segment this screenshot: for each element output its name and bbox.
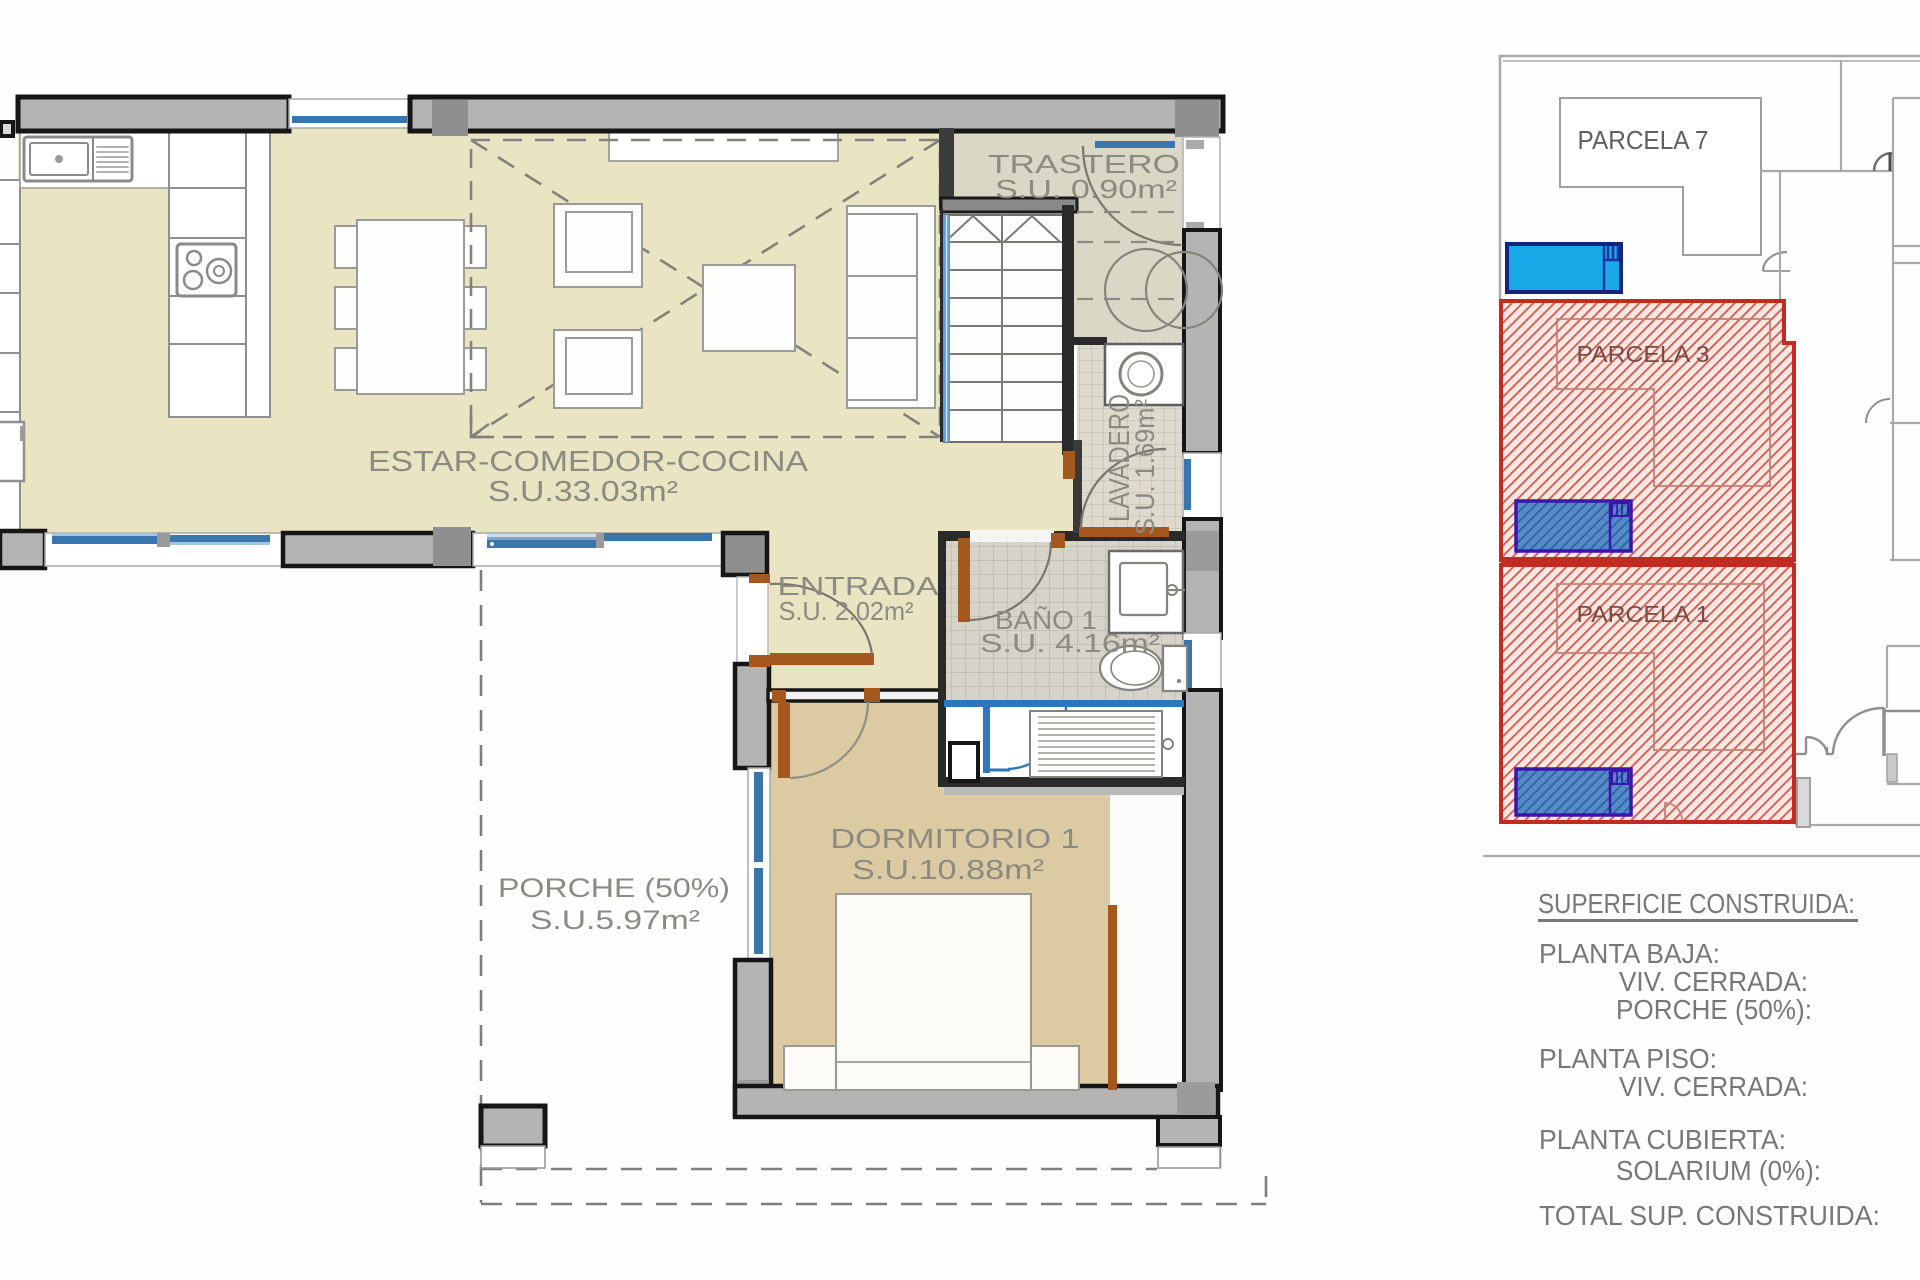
svg-text:SOLARIUM (0%):: SOLARIUM (0%): xyxy=(1616,1155,1821,1186)
svg-text:DORMITORIO 1: DORMITORIO 1 xyxy=(831,823,1080,854)
svg-text:PLANTA BAJA:: PLANTA BAJA: xyxy=(1539,938,1720,969)
svg-text:PARCELA 7: PARCELA 7 xyxy=(1578,125,1709,155)
svg-text:PORCHE (50%):: PORCHE (50%): xyxy=(1616,994,1812,1025)
svg-text:TOTAL SUP. CONSTRUIDA:: TOTAL SUP. CONSTRUIDA: xyxy=(1539,1200,1880,1231)
svg-text:PARCELA 3: PARCELA 3 xyxy=(1577,341,1710,367)
svg-text:S.U. 2.02m²: S.U. 2.02m² xyxy=(779,596,914,626)
svg-text:S.U. 1.69m²: S.U. 1.69m² xyxy=(1130,399,1160,535)
svg-text:S.U. 0.90m²: S.U. 0.90m² xyxy=(995,174,1177,204)
svg-text:PLANTA CUBIERTA:: PLANTA CUBIERTA: xyxy=(1539,1124,1786,1155)
svg-text:PLANTA PISO:: PLANTA PISO: xyxy=(1539,1043,1717,1074)
svg-text:VIV. CERRADA:: VIV. CERRADA: xyxy=(1619,966,1808,997)
svg-text:PARCELA 1: PARCELA 1 xyxy=(1577,601,1710,627)
svg-text:S.U.10.88m²: S.U.10.88m² xyxy=(852,854,1044,885)
svg-text:S.U. 4.16m²: S.U. 4.16m² xyxy=(980,628,1160,658)
svg-text:VIV. CERRADA:: VIV. CERRADA: xyxy=(1619,1071,1808,1102)
svg-text:SUPERFICIE CONSTRUIDA:: SUPERFICIE CONSTRUIDA: xyxy=(1538,888,1855,919)
svg-text:S.U.5.97m²: S.U.5.97m² xyxy=(530,905,700,935)
svg-text:S.U.33.03m²: S.U.33.03m² xyxy=(488,476,678,508)
svg-text:PORCHE (50%): PORCHE (50%) xyxy=(498,873,730,903)
svg-text:ESTAR-COMEDOR-COCINA: ESTAR-COMEDOR-COCINA xyxy=(368,446,809,478)
